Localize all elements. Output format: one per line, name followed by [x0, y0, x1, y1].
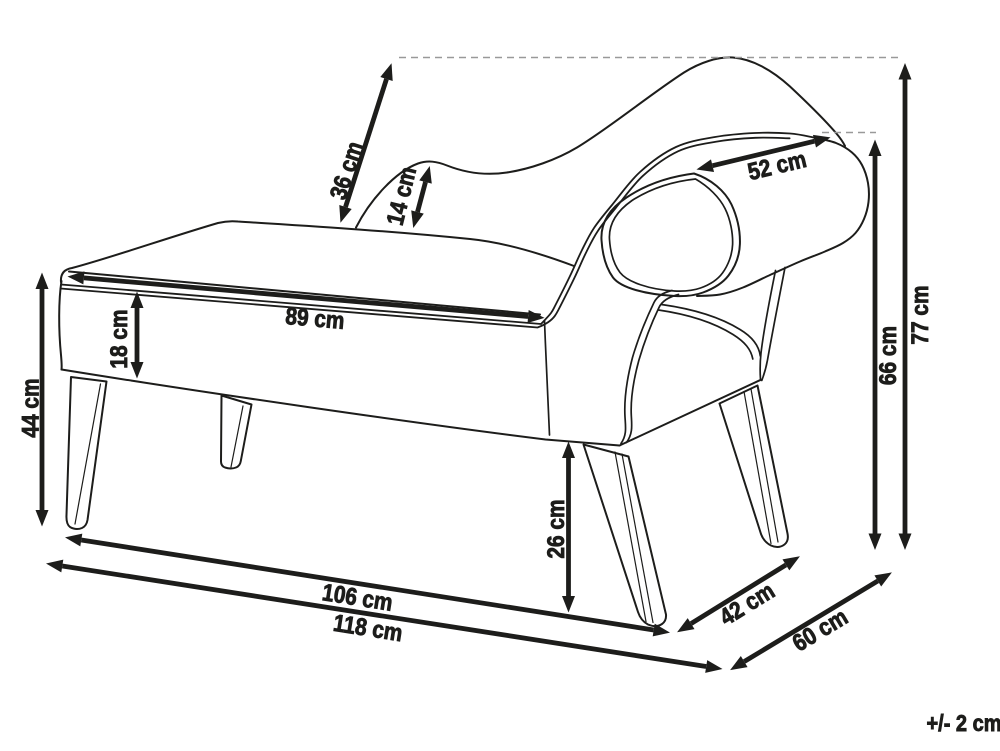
svg-text:18 cm: 18 cm: [106, 309, 133, 368]
svg-text:60 cm: 60 cm: [788, 603, 852, 656]
svg-text:106 cm: 106 cm: [320, 579, 394, 616]
svg-text:118 cm: 118 cm: [332, 609, 405, 646]
svg-text:14 cm: 14 cm: [381, 164, 421, 228]
svg-text:42 cm: 42 cm: [715, 577, 779, 631]
svg-text:36 cm: 36 cm: [325, 138, 369, 203]
svg-text:66 cm: 66 cm: [875, 326, 902, 385]
svg-text:44 cm: 44 cm: [17, 378, 44, 437]
svg-text:26 cm: 26 cm: [543, 499, 570, 558]
svg-text:52 cm: 52 cm: [745, 146, 809, 186]
svg-text:77 cm: 77 cm: [907, 285, 934, 344]
svg-text:89 cm: 89 cm: [284, 303, 345, 335]
svg-text:+/- 2 cm: +/- 2 cm: [926, 710, 1000, 737]
